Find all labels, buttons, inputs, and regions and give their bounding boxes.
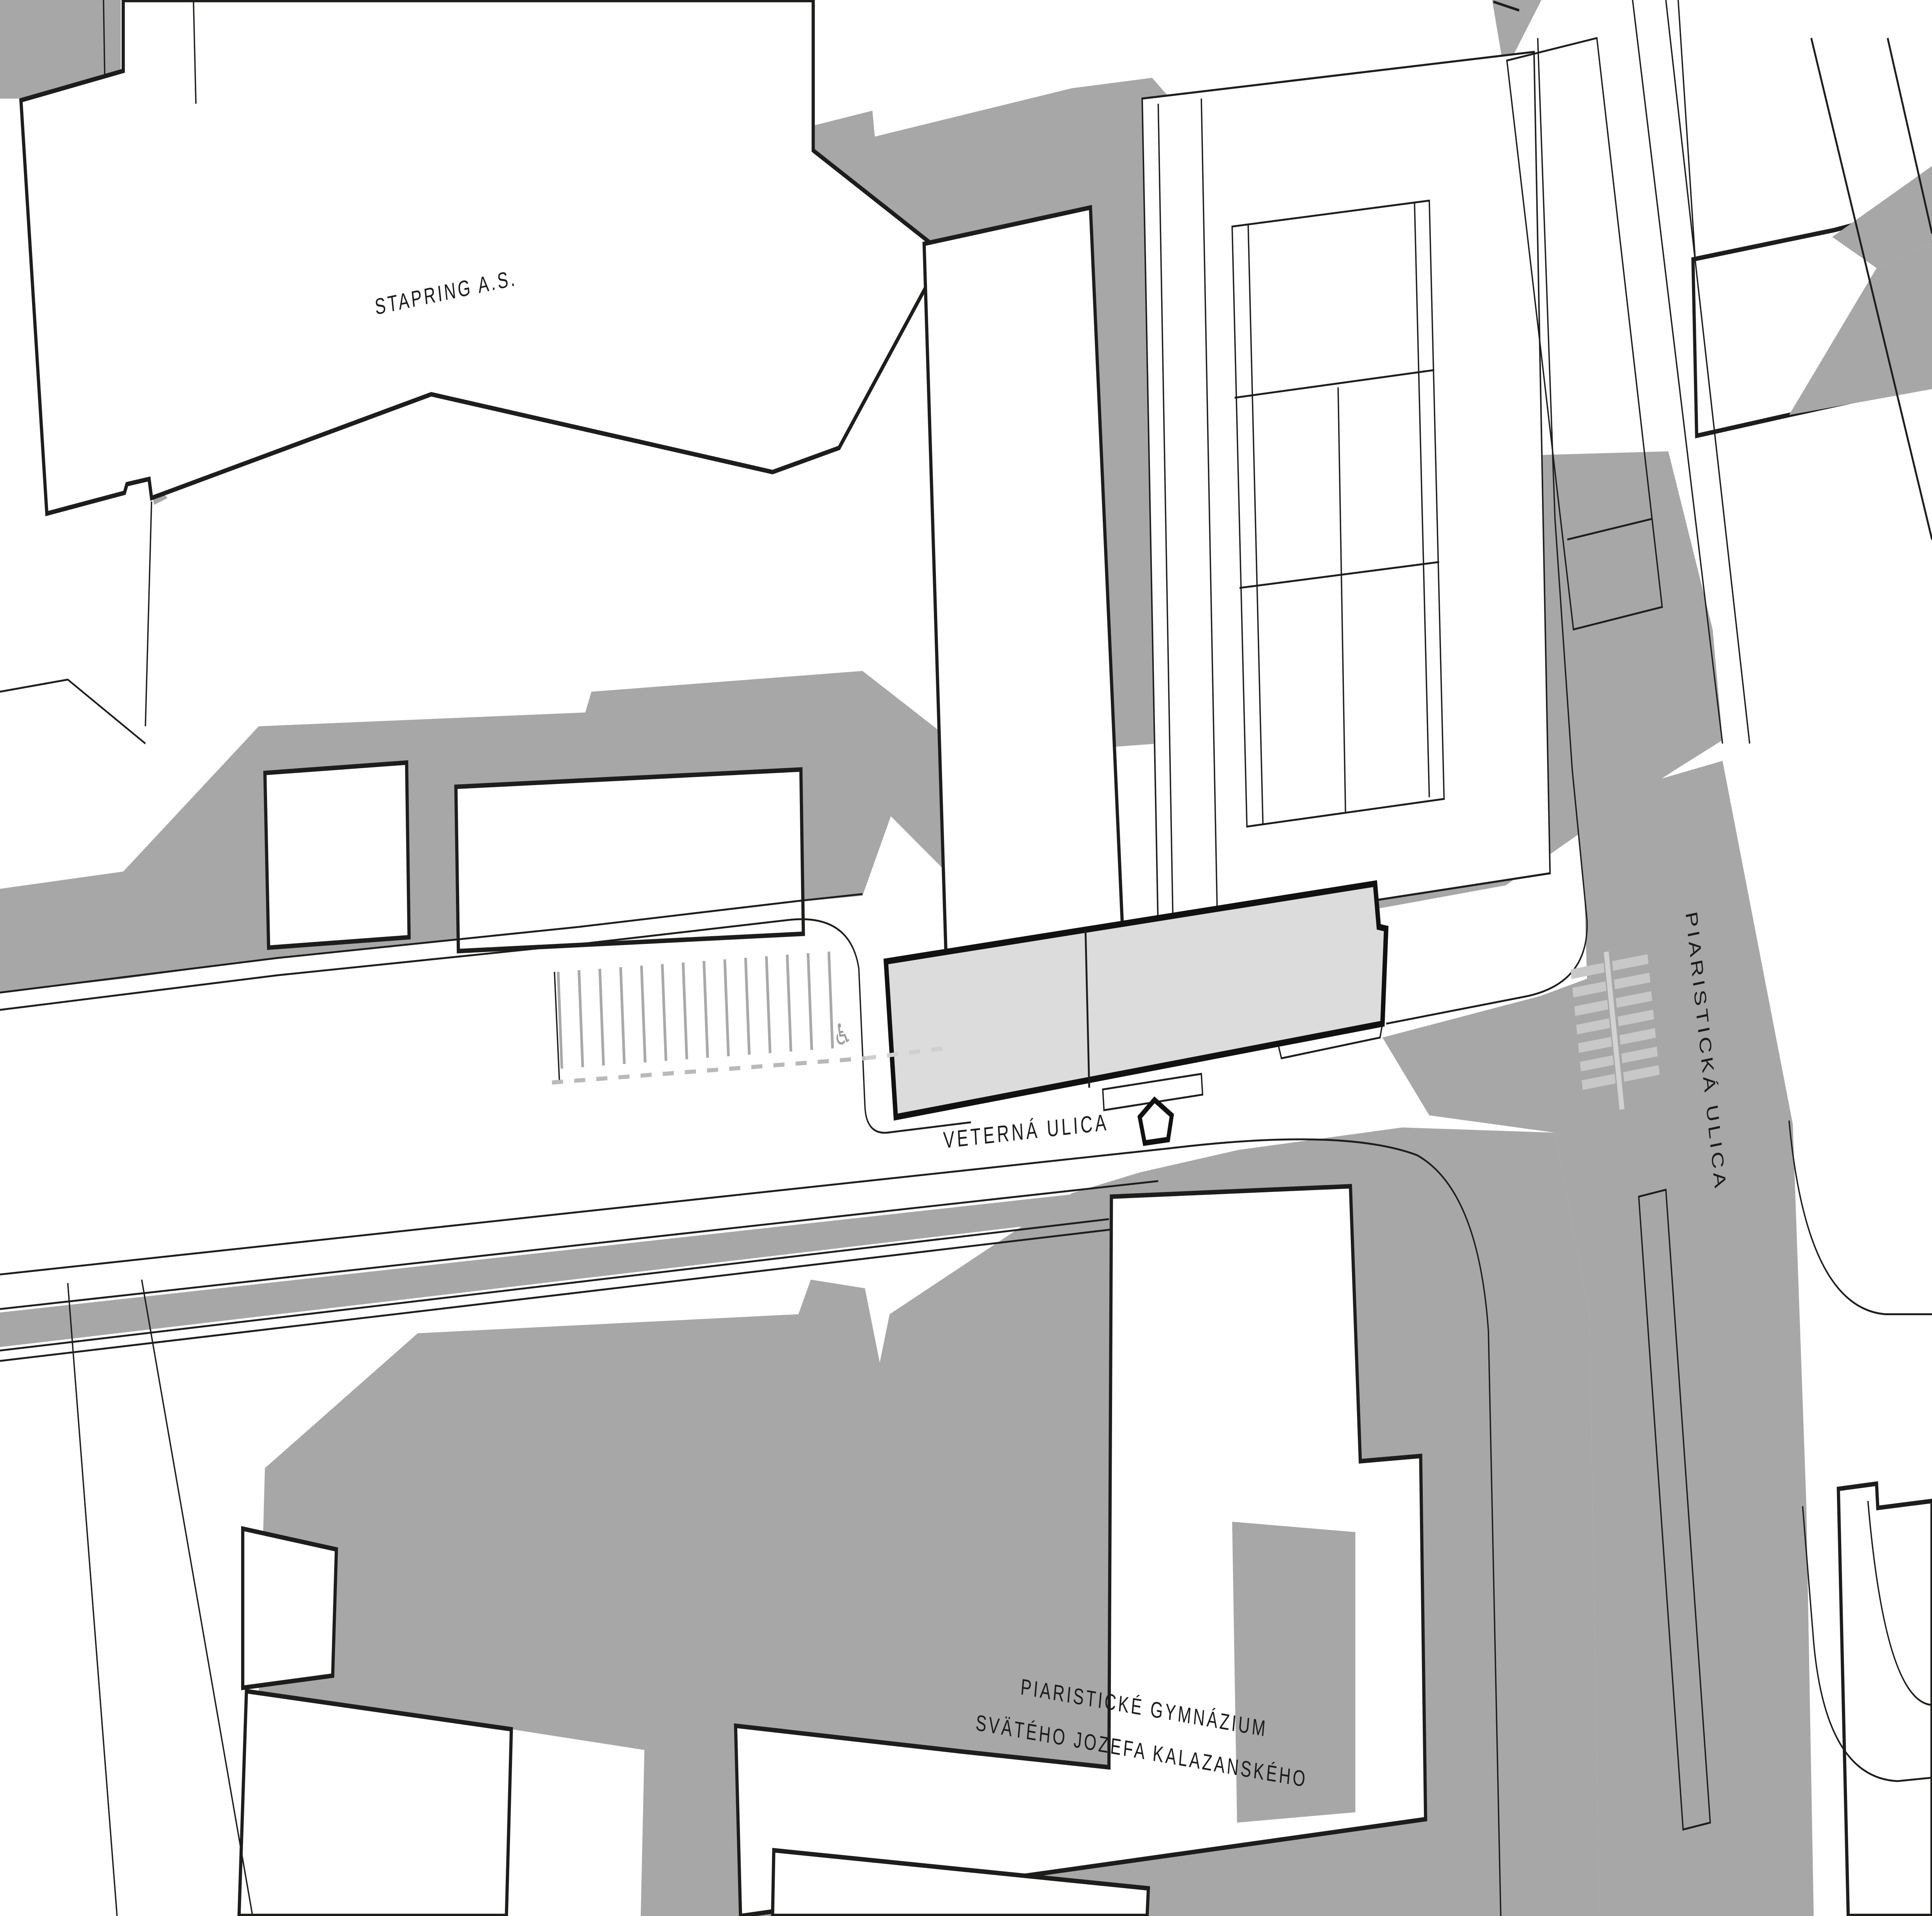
label-veterna: VETERNÁ ULICA <box>943 1110 1109 1154</box>
wheelchair-icon: ♿ <box>832 1016 853 1052</box>
property-line-a <box>68 1283 117 1916</box>
parking-stripe <box>787 955 791 1052</box>
parking-stripe <box>704 961 708 1058</box>
ground-gap-west <box>507 1729 645 1916</box>
property-line-f <box>0 680 145 744</box>
parking-stripe <box>579 970 583 1067</box>
parking-stripe <box>683 962 687 1059</box>
parking-stripe <box>725 959 729 1056</box>
parking-stripes <box>558 952 833 1069</box>
parking-stripe <box>829 952 833 1049</box>
parking-stripe <box>600 969 604 1066</box>
parking-stripe <box>641 966 645 1063</box>
curb-ne-arc <box>1789 1120 1932 1314</box>
parking-stripe <box>746 958 750 1055</box>
building-tall-center <box>924 207 1122 965</box>
parking-stripe <box>621 967 624 1064</box>
building-small-west-1 <box>265 763 409 948</box>
parking-stripe <box>662 964 666 1061</box>
parking-dashed-line <box>552 1058 865 1083</box>
building-stapring <box>21 0 932 513</box>
building-gym-west <box>239 1691 512 1916</box>
entrance-arrow-icon <box>1140 1100 1172 1143</box>
parking-stripe <box>808 953 812 1050</box>
parking-stripe <box>766 956 770 1053</box>
building-gym-small <box>243 1528 336 1688</box>
property-line-b <box>142 1280 253 1916</box>
property-line-c <box>145 502 151 726</box>
site-plan-canvas: ♿ STAPRING A.S. VETERNÁ ULICA PIARISTICK… <box>0 0 1932 1916</box>
